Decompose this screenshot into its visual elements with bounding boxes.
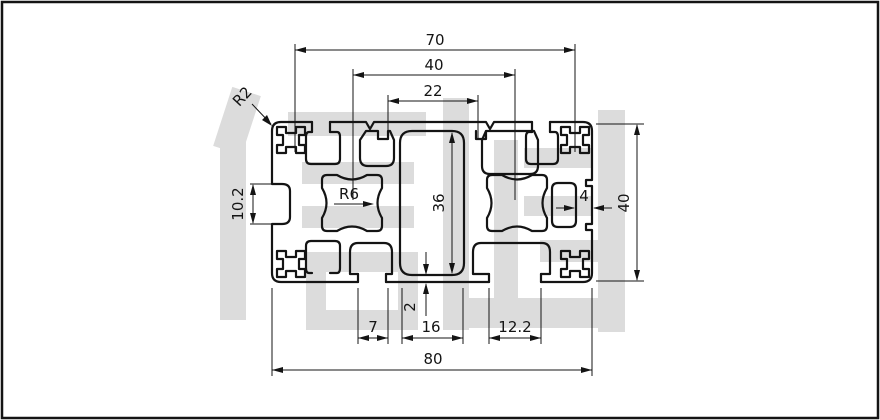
dim-label-40-top: 40 <box>424 56 443 74</box>
dim-label-16: 16 <box>421 318 440 336</box>
watermark-stroke <box>302 206 414 228</box>
dim-label-22: 22 <box>423 82 442 100</box>
dim-label-70: 70 <box>425 31 444 49</box>
dim-label-40-right: 40 <box>615 193 633 212</box>
watermark-stroke <box>302 162 414 184</box>
dim-label-36: 36 <box>430 193 448 212</box>
tslot-cavity-top-left <box>306 132 340 164</box>
watermark-stroke <box>443 98 469 330</box>
dim-label-80: 80 <box>423 350 442 368</box>
dim-label-7: 7 <box>368 318 378 336</box>
watermark-stroke <box>220 140 246 320</box>
dim-label-2: 2 <box>401 302 419 312</box>
watermark-stroke <box>450 298 618 328</box>
corner-cavity-bottom-left <box>277 251 305 277</box>
dim-label-12-2: 12.2 <box>498 318 531 336</box>
watermark-stroke <box>316 262 408 320</box>
dim-label-10-2: 10.2 <box>229 187 247 220</box>
profile-drawing: 70 40 22 R2 R6 36 4 40 10.2 7 2 16 12.2 … <box>0 0 880 420</box>
drawing-canvas: 70 40 22 R2 R6 36 4 40 10.2 7 2 16 12.2 … <box>0 0 880 420</box>
dim-label-r6: R6 <box>339 185 359 203</box>
dim-label-4: 4 <box>579 187 589 205</box>
void-top-left <box>360 131 394 166</box>
watermark-stroke <box>494 140 518 306</box>
